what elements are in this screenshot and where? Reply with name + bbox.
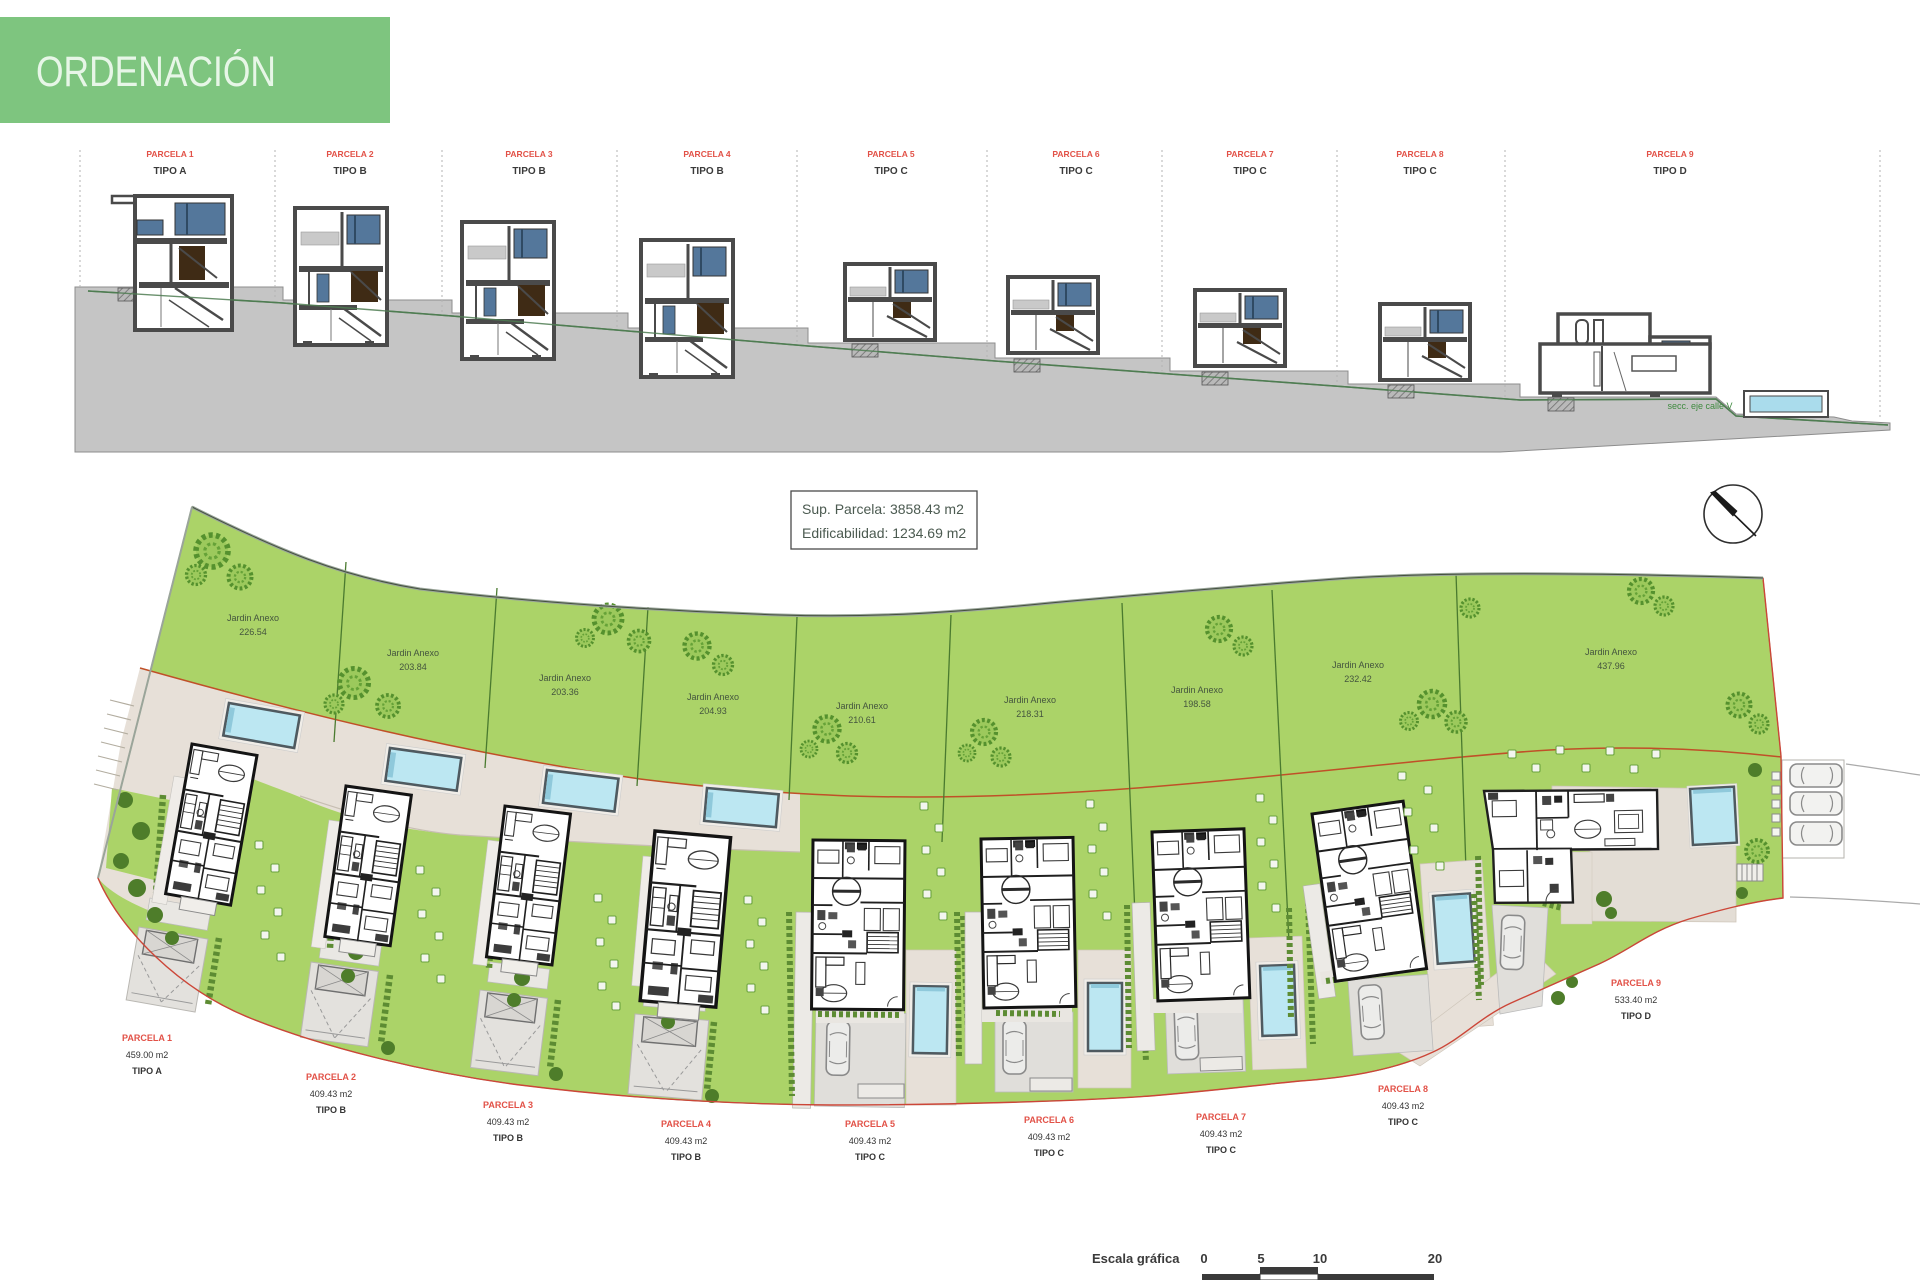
- svg-text:Jardin Anexo: Jardin Anexo: [1004, 695, 1056, 705]
- svg-text:PARCELA 2: PARCELA 2: [326, 149, 374, 159]
- svg-text:0: 0: [1200, 1251, 1207, 1266]
- svg-text:203.36: 203.36: [551, 687, 579, 697]
- svg-text:20: 20: [1428, 1251, 1442, 1266]
- svg-text:TIPO B: TIPO B: [690, 166, 723, 177]
- svg-text:5: 5: [1257, 1251, 1264, 1266]
- svg-text:TIPO C: TIPO C: [1206, 1145, 1237, 1155]
- svg-text:226.54: 226.54: [239, 627, 267, 637]
- svg-text:TIPO C: TIPO C: [1388, 1117, 1419, 1127]
- svg-text:Jardin Anexo: Jardin Anexo: [227, 613, 279, 623]
- svg-text:PARCELA 6: PARCELA 6: [1024, 1115, 1074, 1125]
- svg-text:TIPO B: TIPO B: [333, 166, 366, 177]
- svg-text:TIPO D: TIPO D: [1621, 1011, 1652, 1021]
- svg-text:Jardin Anexo: Jardin Anexo: [1332, 660, 1384, 670]
- svg-text:PARCELA 6: PARCELA 6: [1052, 149, 1100, 159]
- svg-text:409.43 m2: 409.43 m2: [310, 1089, 353, 1099]
- svg-text:PARCELA 1: PARCELA 1: [146, 149, 194, 159]
- svg-text:Edificabilidad: 1234.69 m2: Edificabilidad: 1234.69 m2: [802, 525, 966, 541]
- svg-text:10: 10: [1313, 1251, 1327, 1266]
- svg-text:409.43 m2: 409.43 m2: [1382, 1101, 1425, 1111]
- svg-text:203.84: 203.84: [399, 662, 427, 672]
- svg-text:PARCELA 1: PARCELA 1: [122, 1033, 172, 1043]
- svg-text:198.58: 198.58: [1183, 699, 1211, 709]
- svg-text:Jardin Anexo: Jardin Anexo: [836, 701, 888, 711]
- svg-text:204.93: 204.93: [699, 706, 727, 716]
- svg-text:PARCELA 3: PARCELA 3: [505, 149, 553, 159]
- svg-text:ORDENACIÓN: ORDENACIÓN: [36, 48, 276, 96]
- svg-text:PARCELA 7: PARCELA 7: [1226, 149, 1274, 159]
- svg-text:PARCELA 9: PARCELA 9: [1611, 978, 1661, 988]
- svg-text:Jardin Anexo: Jardin Anexo: [1585, 647, 1637, 657]
- svg-text:TIPO C: TIPO C: [1059, 166, 1092, 177]
- svg-text:Escala gráfica: Escala gráfica: [1092, 1251, 1180, 1266]
- svg-text:Jardin Anexo: Jardin Anexo: [687, 692, 739, 702]
- svg-text:TIPO B: TIPO B: [512, 166, 545, 177]
- svg-text:459.00 m2: 459.00 m2: [126, 1050, 169, 1060]
- svg-text:409.43 m2: 409.43 m2: [487, 1117, 530, 1127]
- svg-text:PARCELA 5: PARCELA 5: [845, 1119, 895, 1129]
- svg-text:533.40 m2: 533.40 m2: [1615, 995, 1658, 1005]
- svg-text:TIPO A: TIPO A: [154, 166, 187, 177]
- svg-text:PARCELA 2: PARCELA 2: [306, 1072, 356, 1082]
- svg-text:secc. eje calle V: secc. eje calle V: [1667, 401, 1732, 411]
- svg-text:210.61: 210.61: [848, 715, 876, 725]
- svg-text:TIPO D: TIPO D: [1653, 166, 1686, 177]
- svg-text:409.43 m2: 409.43 m2: [1200, 1129, 1243, 1139]
- svg-text:TIPO C: TIPO C: [1403, 166, 1436, 177]
- svg-text:PARCELA 9: PARCELA 9: [1646, 149, 1694, 159]
- svg-text:TIPO C: TIPO C: [855, 1152, 886, 1162]
- svg-text:409.43 m2: 409.43 m2: [665, 1136, 708, 1146]
- svg-text:PARCELA 8: PARCELA 8: [1378, 1084, 1428, 1094]
- svg-text:PARCELA 7: PARCELA 7: [1196, 1112, 1246, 1122]
- svg-text:TIPO C: TIPO C: [874, 166, 907, 177]
- svg-text:PARCELA 8: PARCELA 8: [1396, 149, 1444, 159]
- svg-text:Sup. Parcela: 3858.43 m2: Sup. Parcela: 3858.43 m2: [802, 501, 964, 517]
- svg-text:Jardin Anexo: Jardin Anexo: [1171, 685, 1223, 695]
- svg-text:TIPO A: TIPO A: [132, 1066, 162, 1076]
- svg-text:PARCELA 4: PARCELA 4: [683, 149, 731, 159]
- svg-text:TIPO C: TIPO C: [1034, 1148, 1065, 1158]
- svg-text:PARCELA 5: PARCELA 5: [867, 149, 915, 159]
- svg-text:TIPO C: TIPO C: [1233, 166, 1266, 177]
- svg-text:409.43 m2: 409.43 m2: [849, 1136, 892, 1146]
- svg-text:232.42: 232.42: [1344, 674, 1372, 684]
- svg-text:PARCELA 3: PARCELA 3: [483, 1100, 533, 1110]
- svg-text:TIPO B: TIPO B: [493, 1133, 524, 1143]
- svg-text:TIPO B: TIPO B: [671, 1152, 702, 1162]
- svg-text:TIPO B: TIPO B: [316, 1105, 347, 1115]
- svg-text:409.43 m2: 409.43 m2: [1028, 1132, 1071, 1142]
- svg-text:Jardin Anexo: Jardin Anexo: [539, 673, 591, 683]
- svg-text:Jardin Anexo: Jardin Anexo: [387, 648, 439, 658]
- svg-text:437.96: 437.96: [1597, 661, 1625, 671]
- svg-text:PARCELA 4: PARCELA 4: [661, 1119, 711, 1129]
- svg-text:218.31: 218.31: [1016, 709, 1044, 719]
